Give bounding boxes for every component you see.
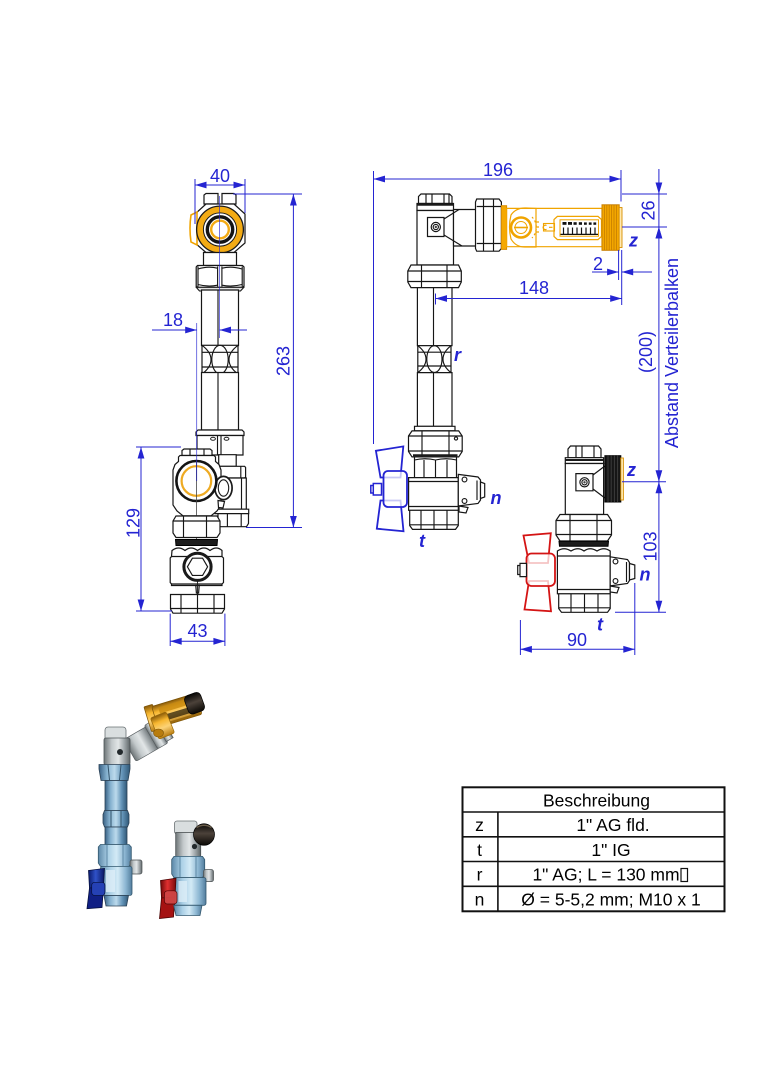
svg-text:148: 148 (519, 278, 549, 298)
svg-text:z: z (628, 231, 638, 251)
svg-text:r: r (477, 865, 483, 885)
svg-text:263: 263 (274, 346, 294, 376)
svg-text:t: t (419, 531, 426, 551)
svg-text:103: 103 (641, 531, 661, 561)
svg-text:t: t (597, 615, 604, 635)
svg-text:Abstand Verteilerbalken: Abstand Verteilerbalken (662, 258, 682, 448)
svg-text:t: t (477, 840, 482, 860)
svg-text:129: 129 (124, 508, 144, 538)
svg-text:40: 40 (210, 166, 230, 186)
svg-text:r: r (454, 345, 462, 365)
svg-text:(200): (200) (636, 331, 656, 373)
svg-text:26: 26 (639, 200, 659, 220)
svg-text:1" IG: 1" IG (591, 840, 630, 860)
svg-text:1" AG; L = 130 mm: 1" AG; L = 130 mm (532, 865, 679, 885)
svg-text:n: n (491, 488, 502, 508)
svg-text:n: n (640, 565, 651, 585)
svg-text:196: 196 (483, 160, 513, 180)
svg-text:43: 43 (187, 621, 207, 641)
svg-text:2: 2 (593, 254, 603, 274)
svg-text:z: z (475, 815, 484, 835)
svg-text:18: 18 (163, 310, 183, 330)
svg-text:Beschreibung: Beschreibung (543, 791, 650, 811)
svg-text:z: z (626, 460, 636, 480)
svg-text:n: n (475, 889, 485, 909)
svg-text:90: 90 (567, 630, 587, 650)
svg-text:Ø = 5-5,2 mm; M10 x 1: Ø = 5-5,2 mm; M10 x 1 (521, 889, 700, 909)
svg-text:1" AG fld.: 1" AG fld. (576, 815, 649, 835)
